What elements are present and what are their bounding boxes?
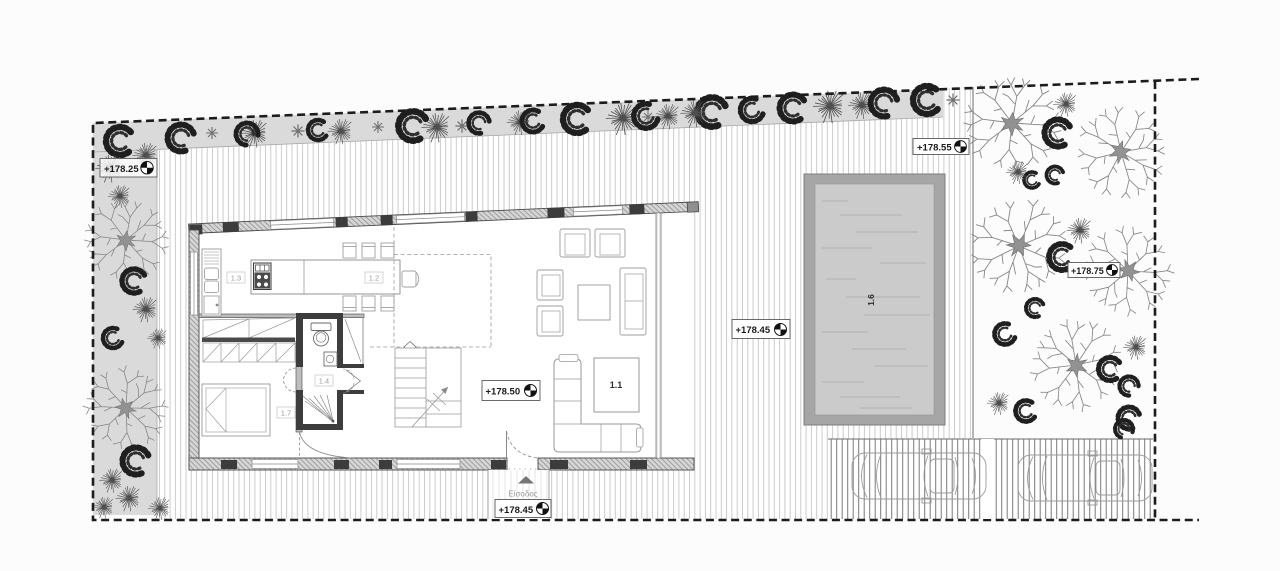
svg-text:1.3: 1.3 xyxy=(231,274,241,283)
svg-text:+178.75: +178.75 xyxy=(1071,266,1104,276)
svg-text:+178.45: +178.45 xyxy=(736,325,771,336)
svg-text:1.4: 1.4 xyxy=(319,377,329,386)
svg-text:Είσοδος: Είσοδος xyxy=(508,490,537,499)
svg-text:+178.55: +178.55 xyxy=(917,143,952,154)
svg-text:1.2: 1.2 xyxy=(369,274,379,283)
svg-text:1.6: 1.6 xyxy=(866,294,876,306)
svg-text:1.1: 1.1 xyxy=(610,380,623,390)
svg-text:+178.45: +178.45 xyxy=(499,505,534,516)
svg-text:+178.25: +178.25 xyxy=(104,164,139,175)
svg-text:+178.50: +178.50 xyxy=(486,387,521,398)
svg-text:1.7: 1.7 xyxy=(281,409,291,418)
